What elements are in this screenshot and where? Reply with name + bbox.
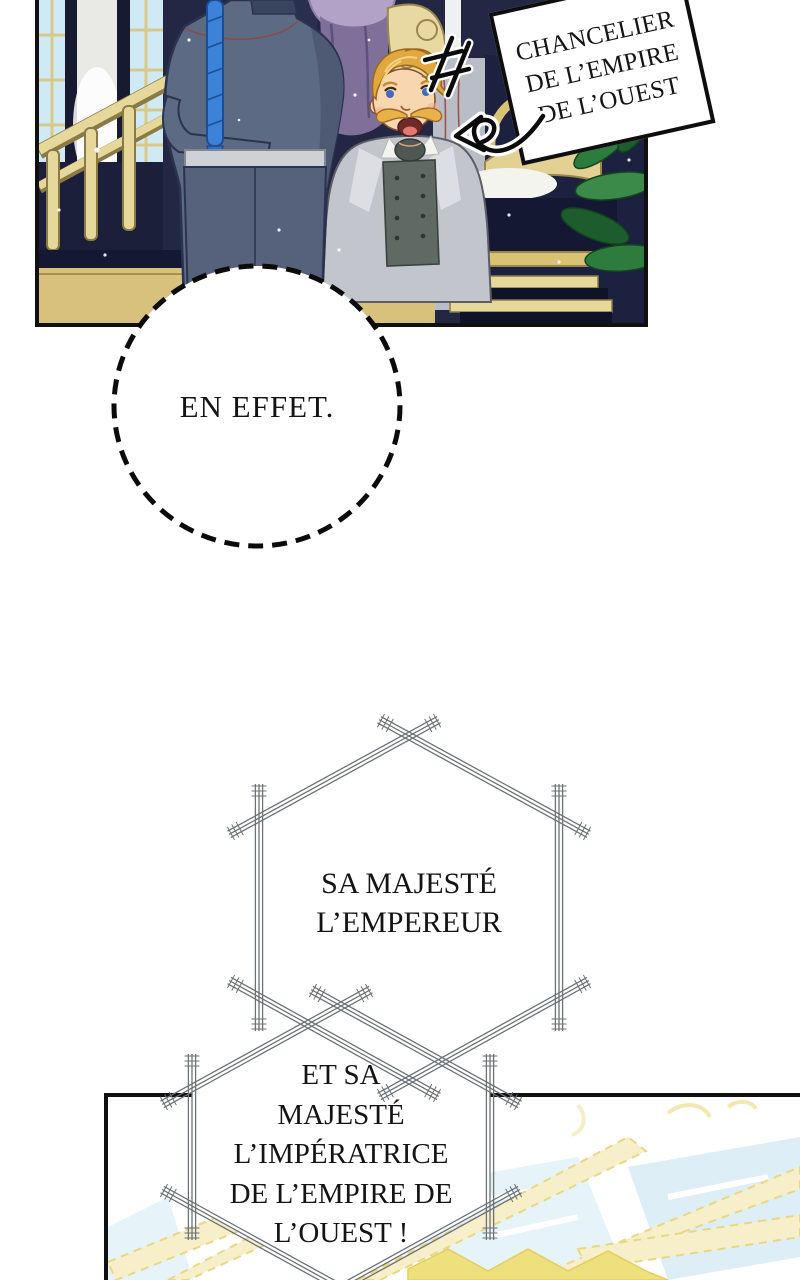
hexagon-speech-top: SA MAJESTÉ L’EMPEREUR xyxy=(259,864,559,942)
speech-line: ET SA xyxy=(181,1056,501,1096)
comic-page: EN EFFET. CHANCELIER DE L’EMPIRE DE L’OU… xyxy=(0,0,800,1280)
speech-line: DE L’EMPIRE DE xyxy=(181,1175,501,1215)
speech-line: L’EMPEREUR xyxy=(259,903,559,942)
round-speech-text: EN EFFET. xyxy=(117,387,397,426)
speech-line: L’IMPÉRATRICE xyxy=(181,1135,501,1175)
caption-box: CHANCELIER DE L’EMPIRE DE L’OUEST xyxy=(488,0,715,166)
speech-line: L’OUEST ! xyxy=(181,1214,501,1254)
hexagon-speech-bottom: ET SA MAJESTÉ L’IMPÉRATRICE DE L’EMPIRE … xyxy=(181,1056,501,1254)
speech-line: SA MAJESTÉ xyxy=(259,864,559,903)
officer-figure xyxy=(163,0,343,302)
speech-line: MAJESTÉ xyxy=(181,1096,501,1136)
